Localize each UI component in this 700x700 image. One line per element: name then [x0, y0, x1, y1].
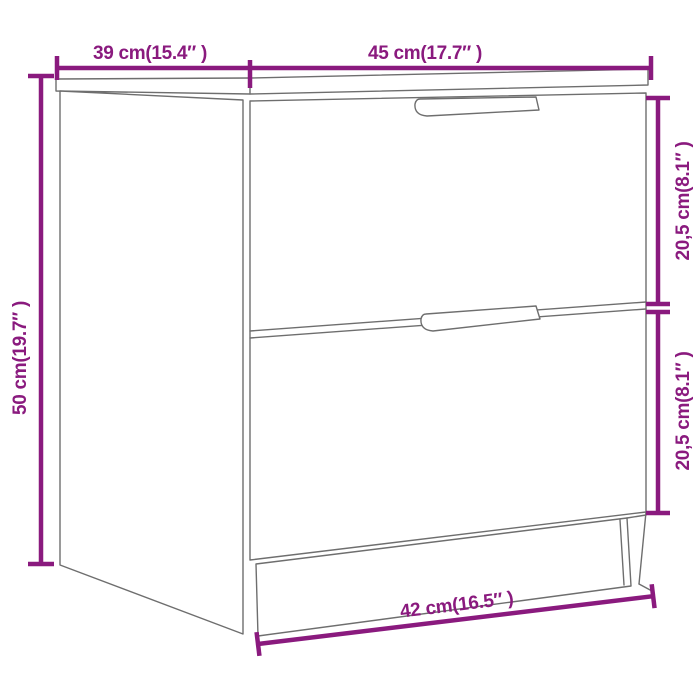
dimension-diagram-svg: 39 cm(15.4″ ) 45 cm(17.7″ ) 50 cm(19.7″ … — [0, 0, 700, 700]
dimension-height-50: 50 cm(19.7″ ) — [10, 76, 54, 564]
dimension-label-depth: 39 cm(15.4″ ) — [93, 43, 207, 64]
base-top-right-edge — [627, 515, 646, 518]
dimension-label-height: 50 cm(19.7″ ) — [10, 301, 31, 415]
tabletop — [56, 69, 648, 94]
furniture-drawing — [56, 69, 652, 636]
right-foot-front-edge — [639, 512, 646, 584]
dimension-upper-drawer-height: 20,5 cm(8.1″ ) — [646, 98, 694, 304]
dimension-label-width: 45 cm(17.7″ ) — [368, 43, 482, 64]
dimension-tick — [257, 632, 260, 656]
dimension-label-upper-drawer: 20,5 cm(8.1″ ) — [673, 142, 694, 261]
product-dimension-image: 39 cm(15.4″ ) 45 cm(17.7″ ) 50 cm(19.7″ … — [0, 0, 700, 700]
side-panel — [60, 91, 243, 634]
dimension-tick — [652, 584, 655, 608]
dimension-lower-drawer-height: 20,5 cm(8.1″ ) — [646, 312, 694, 513]
dimension-label-lower-drawer: 20,5 cm(8.1″ ) — [673, 352, 694, 471]
